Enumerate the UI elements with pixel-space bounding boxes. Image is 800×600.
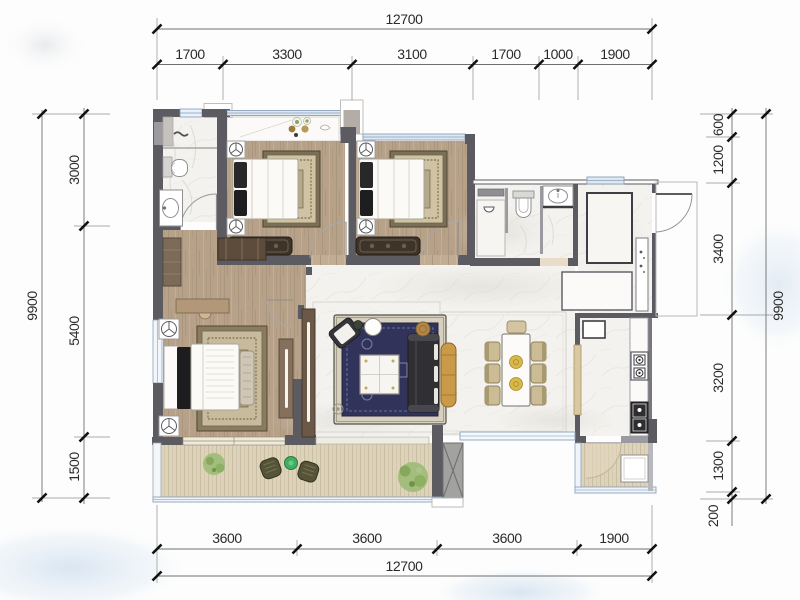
svg-text:1900: 1900 [600, 46, 630, 62]
svg-text:1200: 1200 [710, 145, 726, 175]
svg-text:3100: 3100 [397, 46, 427, 62]
svg-text:3300: 3300 [272, 46, 302, 62]
svg-text:1000: 1000 [543, 46, 573, 62]
svg-text:3200: 3200 [710, 363, 726, 393]
svg-text:3400: 3400 [710, 234, 726, 264]
svg-text:1300: 1300 [710, 451, 726, 481]
svg-text:12700: 12700 [386, 558, 424, 574]
svg-text:1500: 1500 [66, 452, 82, 482]
svg-text:9900: 9900 [24, 291, 40, 321]
svg-text:3600: 3600 [492, 530, 522, 546]
svg-text:12700: 12700 [386, 11, 424, 27]
svg-text:1900: 1900 [599, 530, 629, 546]
svg-text:600: 600 [710, 113, 726, 136]
svg-text:1700: 1700 [175, 46, 205, 62]
svg-text:3000: 3000 [66, 155, 82, 185]
svg-text:5400: 5400 [66, 316, 82, 346]
svg-text:9900: 9900 [770, 291, 786, 321]
svg-text:3600: 3600 [352, 530, 382, 546]
svg-text:200: 200 [705, 504, 721, 527]
svg-text:1700: 1700 [491, 46, 521, 62]
svg-text:3600: 3600 [212, 530, 242, 546]
